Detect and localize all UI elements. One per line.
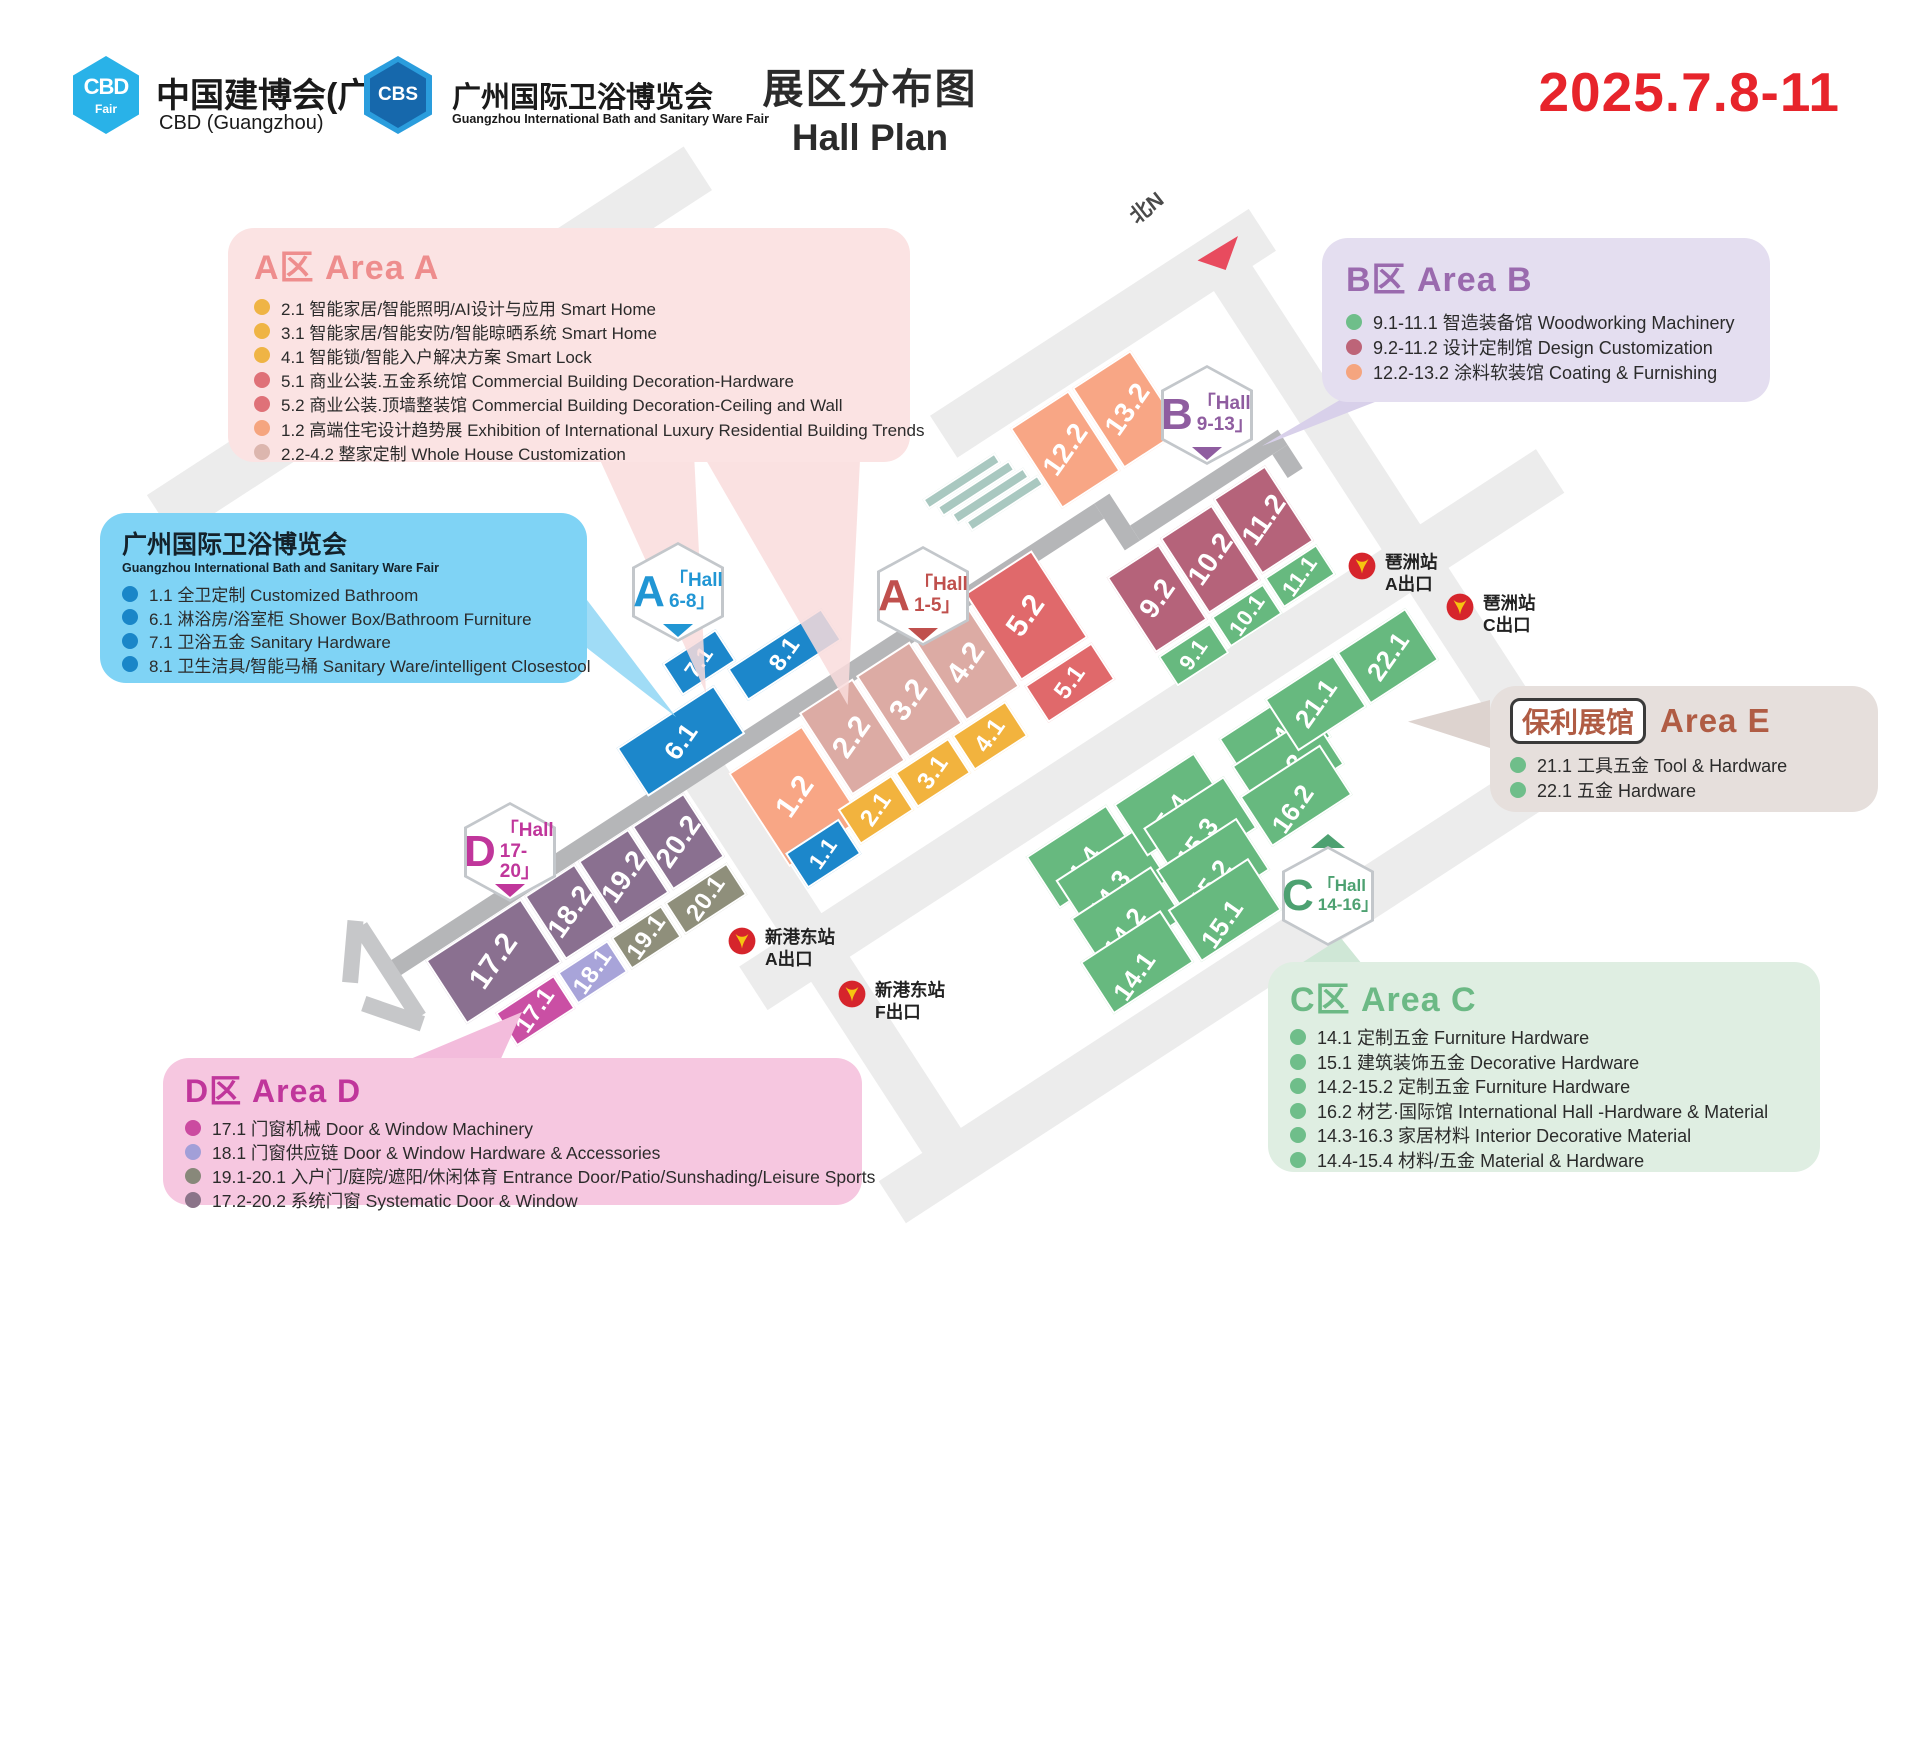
legend-area-b-list: 9.1-11.1 智造装备馆 Woodworking Machinery9.2-… (1346, 309, 1746, 384)
legend-item: 2.1 智能家居/智能照明/AI设计与应用 Smart Home (254, 295, 884, 319)
legend-item: 21.1 工具五金 Tool & Hardware (1510, 752, 1858, 777)
legend-item-label: 17.1 门窗机械 Door & Window Machinery (212, 1116, 533, 1141)
legend-item: 9.1-11.1 智造装备馆 Woodworking Machinery (1346, 309, 1746, 334)
station-exit: A出口 (1385, 574, 1438, 596)
legend-item: 15.1 建筑装饰五金 Decorative Hardware (1290, 1050, 1798, 1075)
legend-item: 2.2-4.2 整家定制 Whole House Customization (254, 440, 884, 464)
legend-item: 14.4-15.4 材料/五金 Material & Hardware (1290, 1148, 1798, 1173)
legend-dot (122, 656, 138, 672)
legend-dot (1290, 1078, 1306, 1094)
legend-dot (1290, 1152, 1306, 1168)
legend-item-label: 1.2 高端住宅设计趋势展 Exhibition of Internationa… (281, 416, 924, 441)
bath-fair-title: 广州国际卫浴博览会 (122, 525, 565, 561)
station-xingangdong-f: 新港东站F出口 (838, 980, 945, 1024)
legend-item-label: 7.1 卫浴五金 Sanitary Hardware (149, 628, 391, 653)
legend-dot (254, 420, 270, 436)
page-title-en: Hall Plan (715, 117, 1025, 159)
legend-item-label: 6.1 淋浴房/浴室柜 Shower Box/Bathroom Furnitur… (149, 605, 532, 630)
page-title-zh: 展区分布图 (715, 55, 1025, 115)
legend-dot (254, 372, 270, 388)
metro-icon (728, 927, 756, 955)
badge-letter: A (878, 574, 910, 618)
legend-item-label: 16.2 材艺·国际馆 International Hall -Hardware… (1317, 1098, 1768, 1124)
road-fork (342, 920, 363, 983)
legend-item-label: 2.2-4.2 整家定制 Whole House Customization (281, 440, 626, 465)
legend-item: 1.2 高端住宅设计趋势展 Exhibition of Internationa… (254, 416, 884, 440)
legend-area-e-list: 21.1 工具五金 Tool & Hardware22.1 五金 Hardwar… (1510, 752, 1858, 802)
bath-fair-list: 1.1 全卫定制 Customized Bathroom6.1 淋浴房/浴室柜 … (122, 582, 565, 676)
legend-area-a: A区 Area A 2.1 智能家居/智能照明/AI设计与应用 Smart Ho… (228, 228, 910, 462)
badge-letter: B (1161, 393, 1193, 437)
event-date: 2025.7.8-11 (1480, 60, 1840, 124)
legend-item: 9.2-11.2 设计定制馆 Design Customization (1346, 334, 1746, 359)
station-name: 琶洲站 (1483, 593, 1536, 615)
legend-dot (254, 299, 270, 315)
legend-item: 22.1 五金 Hardware (1510, 777, 1858, 802)
legend-item: 14.2-15.2 定制五金 Furniture Hardware (1290, 1074, 1798, 1099)
station-exit: A出口 (765, 949, 835, 971)
badge-letter: C (1282, 874, 1314, 918)
legend-dot (1510, 757, 1526, 773)
legend-area-d-title: D区 Area D (185, 1066, 840, 1112)
legend-item: 14.3-16.3 家居材料 Interior Decorative Mater… (1290, 1123, 1798, 1148)
legend-item-label: 8.1 卫生洁具/智能马桶 Sanitary Ware/intelligent … (149, 652, 591, 677)
legend-item: 17.1 门窗机械 Door & Window Machinery (185, 1116, 840, 1140)
legend-item-label: 17.2-20.2 系统门窗 Systematic Door & Window (212, 1188, 578, 1213)
cbd-subtitle: CBD (Guangzhou) (159, 112, 324, 135)
legend-item-label: 3.1 智能家居/智能安防/智能晾晒系统 Smart Home (281, 319, 657, 344)
legend-dot (254, 323, 270, 339)
legend-item-label: 9.1-11.1 智造装备馆 Woodworking Machinery (1373, 309, 1734, 335)
station-xingangdong-a: 新港东站A出口 (728, 927, 835, 971)
legend-bath-fair: 广州国际卫浴博览会 Guangzhou International Bath a… (100, 513, 587, 683)
badge-hall-14-16: C 「Hall14-16」 (1282, 846, 1374, 946)
legend-item: 12.2-13.2 涂料软装馆 Coating & Furnishing (1346, 359, 1746, 384)
legend-dot (1346, 364, 1362, 380)
legend-dot (185, 1144, 201, 1160)
badge-hall-1-5: A 「Hall1-5」 (877, 546, 969, 646)
legend-item-label: 5.1 商业公装.五金系统馆 Commercial Building Decor… (281, 367, 794, 392)
legend-item-label: 22.1 五金 Hardware (1537, 777, 1696, 803)
legend-item-label: 19.1-20.1 入户门/庭院/遮阳/休闲体育 Entrance Door/P… (212, 1164, 875, 1189)
legend-item-label: 18.1 门窗供应链 Door & Window Hardware & Acce… (212, 1140, 660, 1165)
legend-dot (1290, 1103, 1306, 1119)
legend-item: 19.1-20.1 入户门/庭院/遮阳/休闲体育 Entrance Door/P… (185, 1164, 840, 1188)
badge-hall-6-8: A 「Hall6-8」 (632, 542, 724, 642)
legend-item-label: 12.2-13.2 涂料软装馆 Coating & Furnishing (1373, 359, 1717, 385)
legend-item: 8.1 卫生洁具/智能马桶 Sanitary Ware/intelligent … (122, 653, 565, 677)
legend-item: 14.1 定制五金 Furniture Hardware (1290, 1025, 1798, 1050)
legend-item: 17.2-20.2 系统门窗 Systematic Door & Window (185, 1188, 840, 1212)
legend-area-c-title: C区 Area C (1290, 972, 1798, 1021)
legend-item-label: 14.4-15.4 材料/五金 Material & Hardware (1317, 1147, 1644, 1173)
legend-item-label: 5.2 商业公装.顶墙整装馆 Commercial Building Decor… (281, 391, 843, 416)
legend-item-label: 4.1 智能锁/智能入户解决方案 Smart Lock (281, 343, 592, 368)
legend-dot (1510, 782, 1526, 798)
legend-area-a-list: 2.1 智能家居/智能照明/AI设计与应用 Smart Home3.1 智能家居… (254, 295, 884, 464)
bath-fair-subtitle: Guangzhou International Bath and Sanitar… (122, 561, 565, 575)
legend-area-b: B区 Area B 9.1-11.1 智造装备馆 Woodworking Mac… (1322, 238, 1770, 402)
legend-item-label: 15.1 建筑装饰五金 Decorative Hardware (1317, 1049, 1639, 1075)
legend-dot (1346, 314, 1362, 330)
cbd-fair-logo: CBD Fair (73, 56, 139, 134)
legend-item-label: 14.3-16.3 家居材料 Interior Decorative Mater… (1317, 1122, 1691, 1148)
station-exit: F出口 (875, 1002, 945, 1024)
legend-item: 1.1 全卫定制 Customized Bathroom (122, 582, 565, 606)
poly-hall-badge: 保利展馆 (1510, 698, 1646, 744)
legend-item: 7.1 卫浴五金 Sanitary Hardware (122, 629, 565, 653)
station-pazhou-c: 琶洲站C出口 (1446, 593, 1536, 637)
legend-area-b-title: B区 Area B (1346, 252, 1746, 301)
legend-item-label: 14.2-15.2 定制五金 Furniture Hardware (1317, 1073, 1630, 1099)
station-exit: C出口 (1483, 615, 1536, 637)
legend-area-d-list: 17.1 门窗机械 Door & Window Machinery18.1 门窗… (185, 1116, 840, 1212)
legend-area-d: D区 Area D 17.1 门窗机械 Door & Window Machin… (163, 1058, 862, 1205)
legend-item-label: 2.1 智能家居/智能照明/AI设计与应用 Smart Home (281, 295, 656, 320)
legend-area-e: 保利展馆 Area E 21.1 工具五金 Tool & Hardware22.… (1490, 686, 1878, 812)
legend-item: 5.2 商业公装.顶墙整装馆 Commercial Building Decor… (254, 392, 884, 416)
badge-letter: A (633, 570, 665, 614)
legend-item: 18.1 门窗供应链 Door & Window Hardware & Acce… (185, 1140, 840, 1164)
cbs-title: 广州国际卫浴博览会 (452, 74, 713, 116)
legend-dot (122, 609, 138, 625)
legend-item-label: 14.1 定制五金 Furniture Hardware (1317, 1024, 1589, 1050)
metro-icon (1446, 593, 1474, 621)
legend-item: 16.2 材艺·国际馆 International Hall -Hardware… (1290, 1099, 1798, 1124)
legend-dot (185, 1192, 201, 1208)
legend-dot (254, 347, 270, 363)
legend-dot (122, 586, 138, 602)
legend-area-a-title: A区 Area A (254, 240, 884, 289)
legend-item: 4.1 智能锁/智能入户解决方案 Smart Lock (254, 343, 884, 367)
legend-dot (254, 444, 270, 460)
metro-icon (838, 980, 866, 1008)
badge-letter: D (464, 830, 496, 874)
badge-hall-17-20: D 「Hall17-20」 (464, 802, 556, 902)
legend-item: 6.1 淋浴房/浴室柜 Shower Box/Bathroom Furnitur… (122, 606, 565, 630)
legend-area-e-title: Area E (1660, 702, 1771, 740)
legend-area-c: C区 Area C 14.1 定制五金 Furniture Hardware15… (1268, 962, 1820, 1172)
station-name: 新港东站 (765, 927, 835, 949)
legend-dot (1290, 1054, 1306, 1070)
badge-hall-9-13: B 「Hall9-13」 (1161, 365, 1253, 465)
legend-item-label: 9.2-11.2 设计定制馆 Design Customization (1373, 334, 1713, 360)
legend-item: 3.1 智能家居/智能安防/智能晾晒系统 Smart Home (254, 319, 884, 343)
legend-dot (185, 1168, 201, 1184)
legend-dot (1290, 1127, 1306, 1143)
legend-item: 5.1 商业公装.五金系统馆 Commercial Building Decor… (254, 368, 884, 392)
legend-item-label: 1.1 全卫定制 Customized Bathroom (149, 581, 418, 606)
legend-dot (1346, 339, 1362, 355)
legend-item-label: 21.1 工具五金 Tool & Hardware (1537, 752, 1787, 778)
station-name: 新港东站 (875, 980, 945, 1002)
station-name: 琶洲站 (1385, 552, 1438, 574)
legend-dot (185, 1120, 201, 1136)
metro-icon (1348, 552, 1376, 580)
legend-dot (1290, 1029, 1306, 1045)
page-title: 展区分布图 Hall Plan (715, 55, 1025, 159)
legend-dot (122, 633, 138, 649)
legend-area-c-list: 14.1 定制五金 Furniture Hardware15.1 建筑装饰五金 … (1290, 1025, 1798, 1172)
legend-dot (254, 396, 270, 412)
station-pazhou-a: 琶洲站A出口 (1348, 552, 1438, 596)
